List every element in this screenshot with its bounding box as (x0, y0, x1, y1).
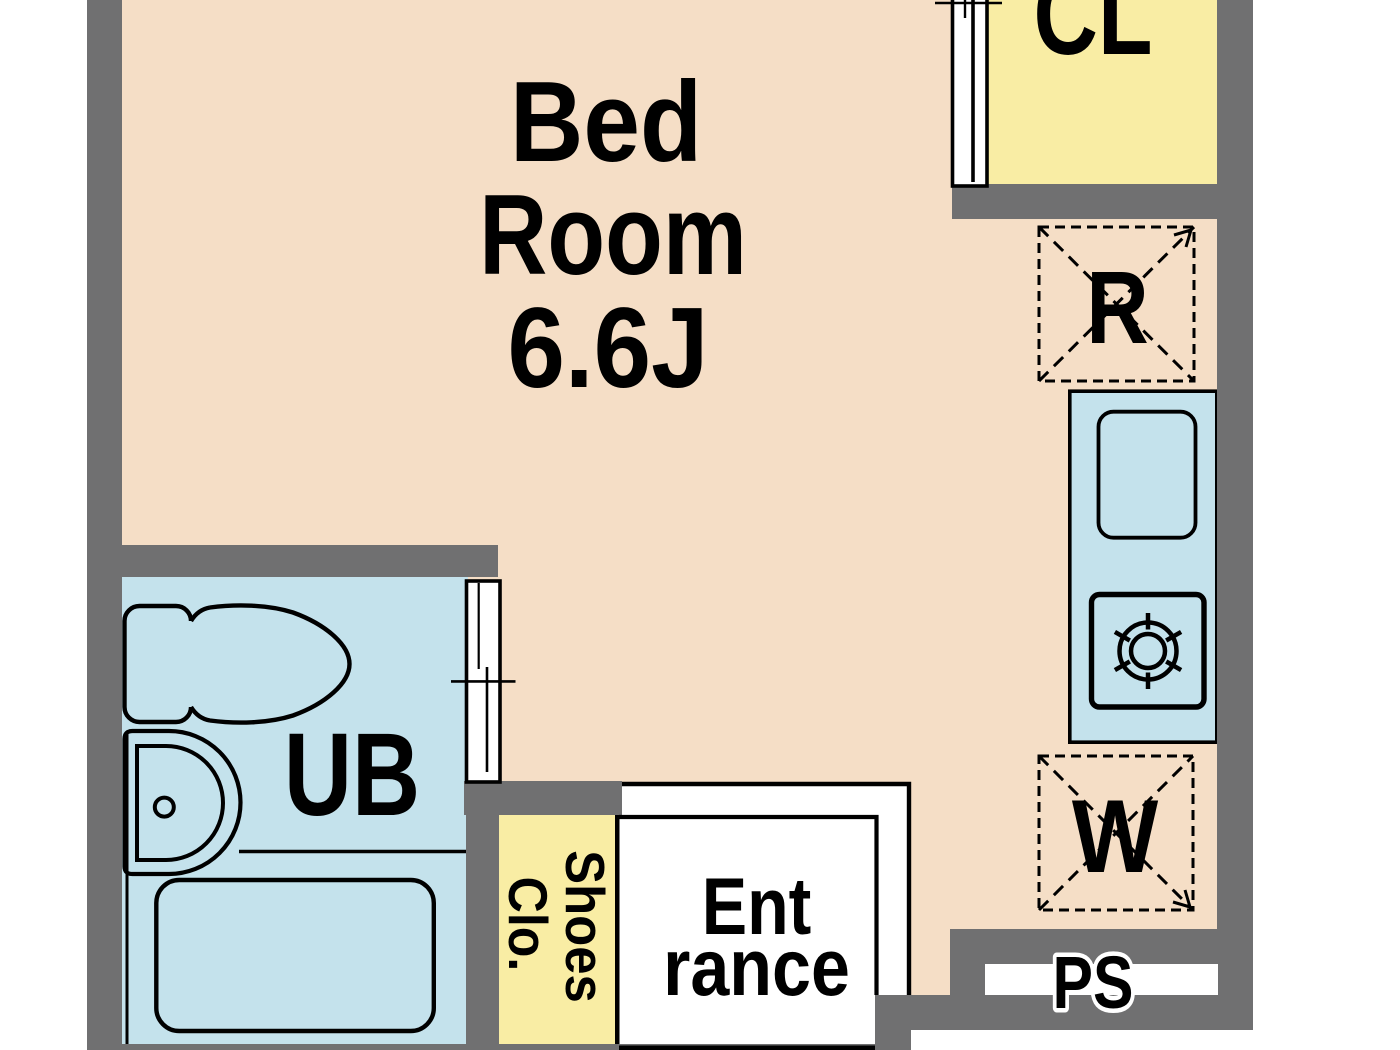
svg-text:R: R (1086, 251, 1148, 366)
svg-text:rance: rance (663, 922, 850, 1013)
svg-text:W: W (1072, 778, 1159, 895)
svg-text:Shoes: Shoes (554, 850, 615, 1003)
svg-text:6.6J: 6.6J (507, 285, 708, 412)
svg-text:Clo.: Clo. (496, 877, 558, 972)
svg-text:PS: PS (1053, 942, 1134, 1024)
svg-text:CL: CL (1034, 0, 1153, 79)
svg-text:Room: Room (479, 172, 747, 299)
svg-text:Bed: Bed (510, 58, 702, 186)
svg-text:UB: UB (284, 708, 420, 841)
